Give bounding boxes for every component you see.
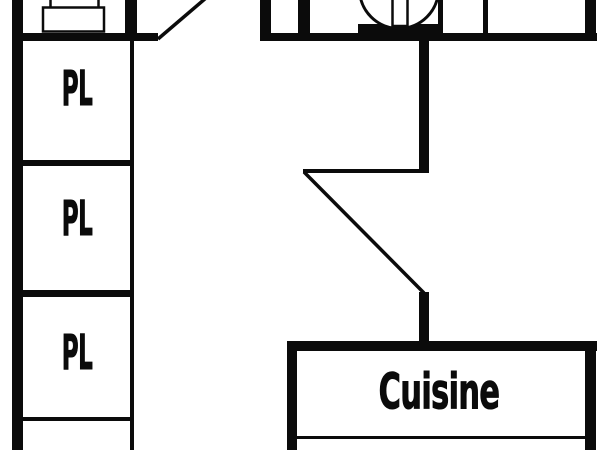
floor-plan: PL PL PL Cuisine	[0, 0, 600, 450]
kitchen-label: Cuisine	[379, 368, 500, 417]
closet-1-label: PL	[62, 65, 93, 113]
door-swing-top	[158, 0, 213, 39]
closet-3-label: PL	[62, 329, 93, 377]
toilet-icon	[358, 0, 440, 38]
washbasin-icon	[43, 0, 104, 32]
closet-2-label: PL	[62, 195, 93, 243]
door-swing-middle	[304, 172, 424, 293]
